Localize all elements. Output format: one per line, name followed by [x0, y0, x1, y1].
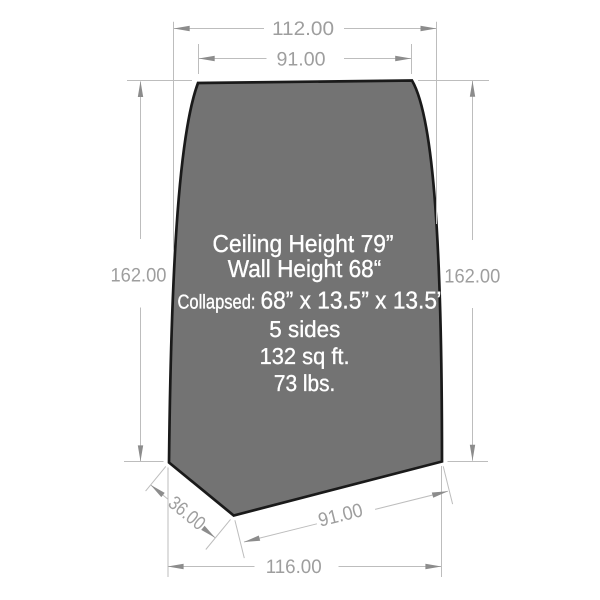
- svg-text:91.00: 91.00: [277, 49, 326, 71]
- svg-text:112.00: 112.00: [272, 18, 334, 40]
- svg-text:91.00: 91.00: [316, 499, 365, 531]
- svg-text:162.00: 162.00: [444, 266, 500, 288]
- svg-text:162.00: 162.00: [111, 265, 167, 287]
- svg-text:68” x 13.5” x 13.5”: 68” x 13.5” x 13.5”: [261, 288, 445, 315]
- svg-text:5 sides: 5 sides: [269, 316, 340, 342]
- svg-text:73 lbs.: 73 lbs.: [274, 370, 336, 396]
- svg-text:132 sq ft.: 132 sq ft.: [260, 343, 350, 369]
- svg-text:Wall Height 68“: Wall Height 68“: [228, 256, 382, 283]
- svg-text:116.00: 116.00: [266, 556, 322, 578]
- svg-text:Collapsed:: Collapsed:: [178, 292, 256, 314]
- svg-text:Ceiling Height 79”: Ceiling Height 79”: [213, 231, 394, 258]
